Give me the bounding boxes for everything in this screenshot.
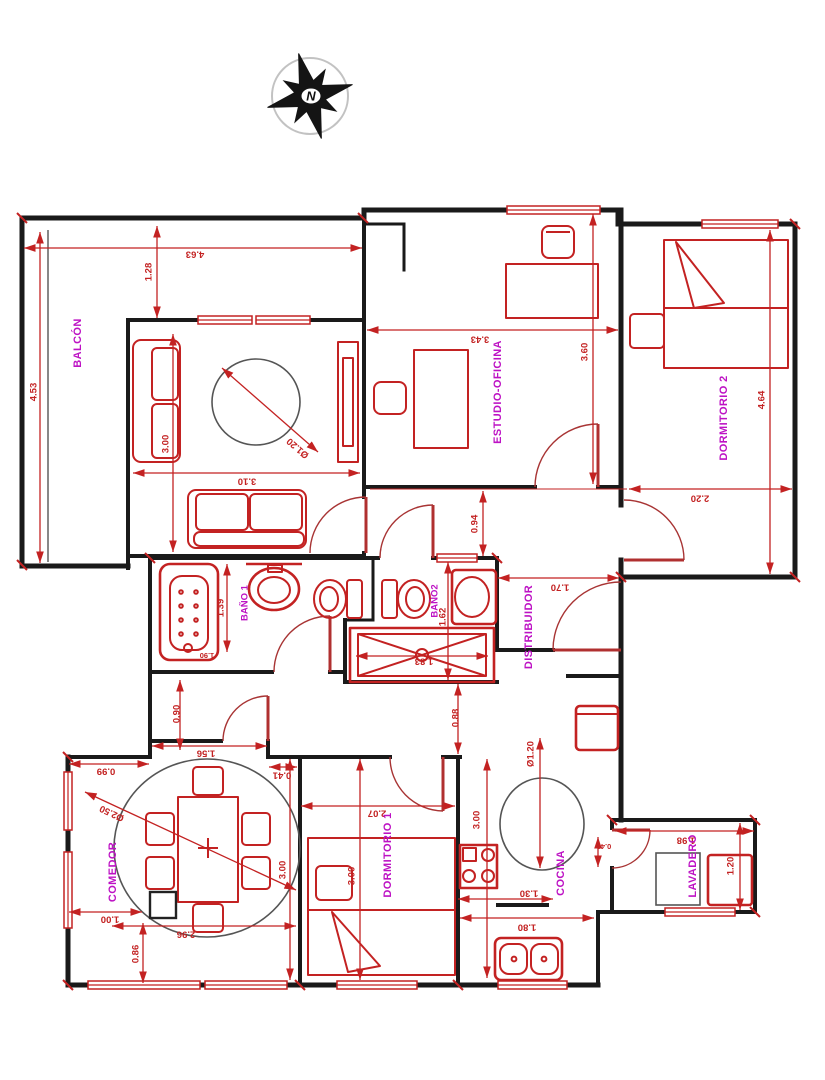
dim-comedor-b2: 0.86	[131, 945, 142, 964]
dim-comedor-top1: 0.99	[97, 765, 116, 776]
dimension-lines	[24, 214, 792, 983]
bano1-sink	[246, 564, 302, 610]
dim-comedor-b1: 1.00	[101, 913, 120, 924]
dim-top-width: 4.63	[186, 248, 205, 259]
dim-cocina-counter: 1.30	[520, 887, 539, 898]
dim-pasillo: 0.94	[470, 514, 481, 533]
estudio-chair-1	[542, 226, 574, 258]
dim-pasillo3: 0.88	[451, 709, 462, 728]
estudio-chair-2	[374, 382, 406, 414]
dim-balcon-length: 4.53	[29, 383, 40, 402]
bano1-toilet	[314, 580, 362, 618]
shower-tray	[350, 628, 494, 682]
floor-plan-page: N	[0, 0, 825, 1080]
sala-tv-unit	[338, 342, 358, 462]
room-label-dormitorio1: DORMITORIO 1	[382, 812, 394, 897]
room-label-balcon: BALCÓN	[71, 318, 84, 367]
bano2-sink	[452, 570, 496, 624]
dim-lavadero-door: 0.40	[597, 842, 612, 851]
room-label-estudio-oficina: ESTUDIO-OFICINA	[492, 340, 504, 444]
dim-comedor-circle: Ø2.50	[98, 803, 126, 824]
windows	[64, 206, 778, 989]
dim-sala-width: 3.10	[238, 475, 257, 486]
dim-bano1-tub: 1.90	[200, 651, 215, 660]
bathtub	[160, 564, 218, 660]
walls	[22, 210, 795, 985]
sala-sofa-2	[188, 490, 306, 548]
room-label-bano2: BAÑO2	[430, 584, 441, 617]
compass-north-label: N	[306, 88, 316, 103]
dim-comedor-top3: 0.41	[272, 769, 291, 780]
dim-distribuidor-width: 1.70	[551, 581, 570, 592]
dorm2-nightstand	[630, 314, 664, 348]
dim-bano1-width: 1.39	[216, 599, 227, 618]
room-label-distribuidor: DISTRIBUIDOR	[523, 585, 535, 669]
dim-cocina-depth: 3.00	[472, 811, 483, 830]
dim-dorm2-length: 4.64	[757, 390, 768, 409]
dim-pasillo2: 0.90	[172, 705, 183, 724]
dim-balcon-depth: 1.28	[144, 263, 155, 282]
room-label-cocina: COCINA	[555, 850, 567, 896]
compass-rose-icon: N	[268, 54, 353, 139]
dim-estudio-depth: 3.60	[580, 343, 591, 362]
estudio-desk-2	[414, 350, 468, 448]
dim-dorm2-width: 2.20	[691, 492, 710, 503]
dim-sala-rug: Ø1.20	[285, 435, 312, 460]
dim-dorm1-depth: 3.00	[347, 867, 358, 886]
room-label-comedor: COMEDOR	[107, 842, 119, 902]
kitchen-sink	[495, 938, 562, 980]
room-label-lavadero: LAVADERO	[687, 834, 699, 897]
room-label-dormitorio2: DORMITORIO 2	[718, 375, 730, 460]
sala-rug	[212, 359, 300, 445]
dim-comedor-depth: 3.00	[278, 861, 289, 880]
fridge	[576, 706, 618, 750]
dim-comedor-top2: 1.56	[197, 747, 216, 758]
dim-ducha-length: 1.83	[415, 655, 434, 666]
bano2-toilet	[382, 580, 430, 618]
floor-plan-canvas: N	[0, 0, 825, 1080]
room-label-bano1: BAÑO 1	[240, 584, 251, 621]
dim-lavadero-depth: 1.20	[726, 857, 737, 876]
dim-comedor-width: 2.96	[177, 928, 196, 939]
dim-cocina-circle: Ø1.20	[526, 741, 537, 767]
dim-estudio-width: 3.43	[471, 333, 490, 344]
stove	[460, 845, 497, 888]
cocina-circle	[500, 778, 584, 870]
dim-cocina-width: 1.80	[518, 921, 537, 932]
estudio-desk-1	[506, 264, 598, 318]
dim-sala-depth: 3.00	[161, 435, 172, 454]
